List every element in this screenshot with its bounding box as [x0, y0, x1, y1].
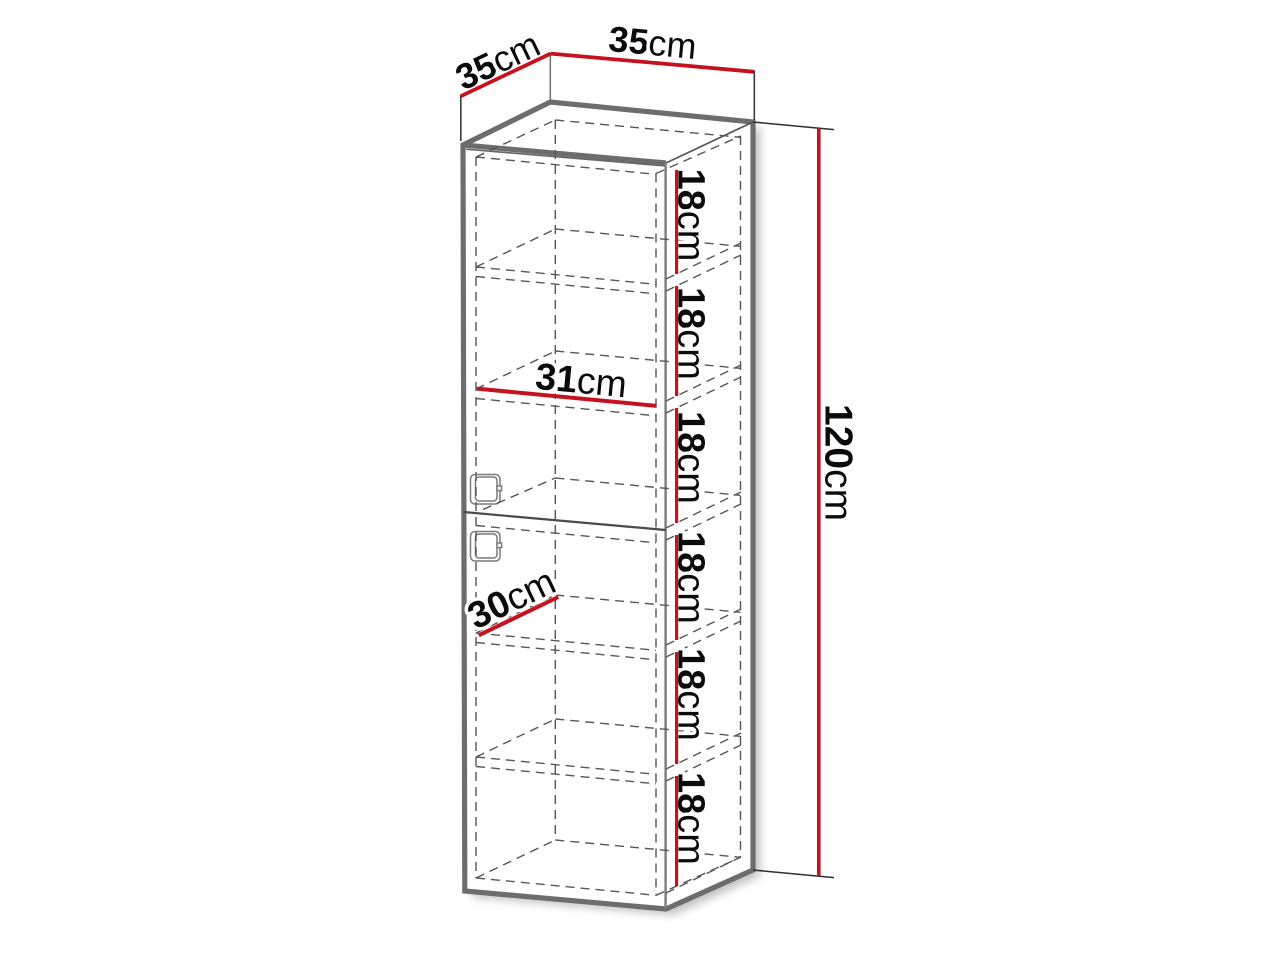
svg-text:120cm: 120cm	[817, 404, 860, 521]
